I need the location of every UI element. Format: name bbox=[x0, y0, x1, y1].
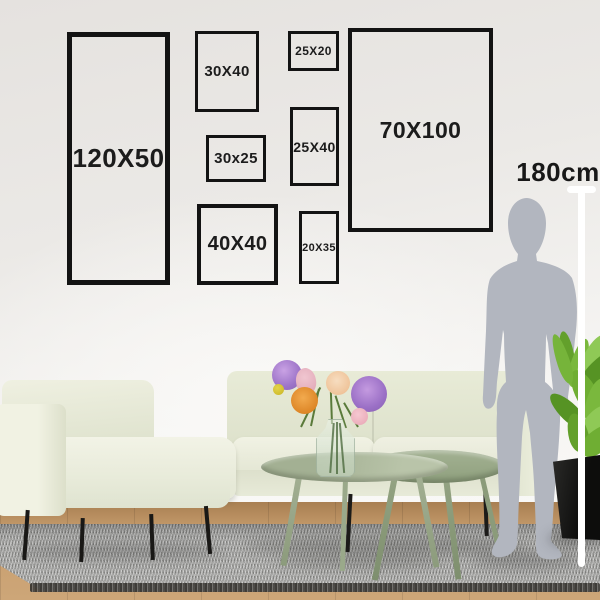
person-silhouette bbox=[0, 0, 600, 600]
gallery-wall-size-guide: 120X50 30X40 25X20 30x25 25X40 40X40 20X… bbox=[0, 0, 600, 600]
height-measure-line bbox=[578, 190, 585, 567]
height-label: 180cm bbox=[512, 157, 600, 188]
